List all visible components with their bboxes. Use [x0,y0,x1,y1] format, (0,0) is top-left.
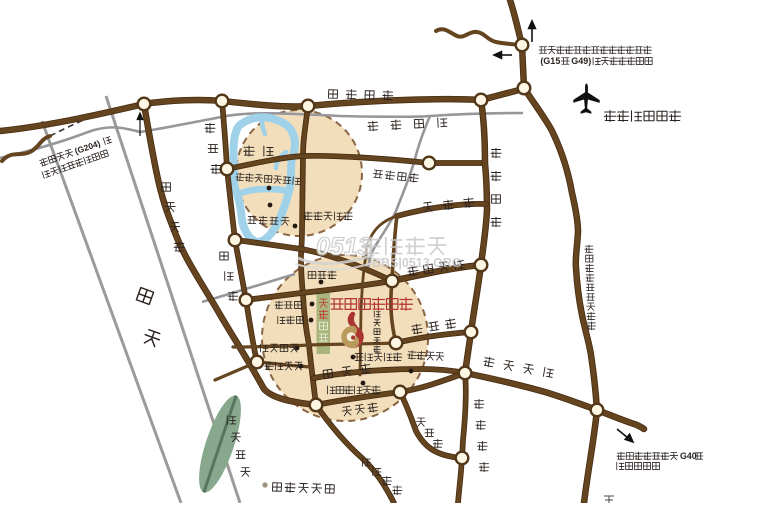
svg-text:G49): G49) [571,56,591,66]
svg-text:BBS|0513.ORG: BBS|0513.ORG [372,256,462,270]
svg-text:G40: G40 [680,451,697,461]
svg-text:(G15: (G15 [540,56,560,66]
